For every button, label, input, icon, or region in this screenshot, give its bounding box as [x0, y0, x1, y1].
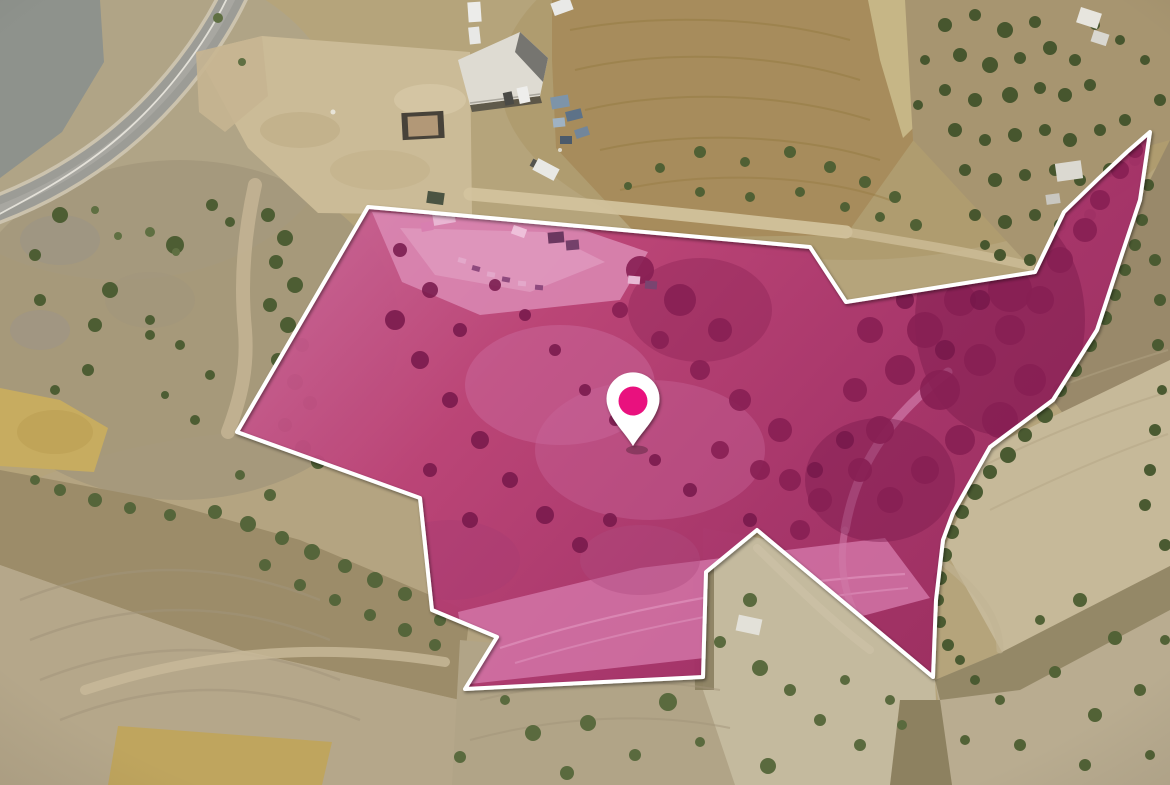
aerial-parcel-photo — [0, 0, 1170, 785]
aerial-photo-canvas — [0, 0, 1170, 785]
vignette — [0, 0, 1170, 785]
